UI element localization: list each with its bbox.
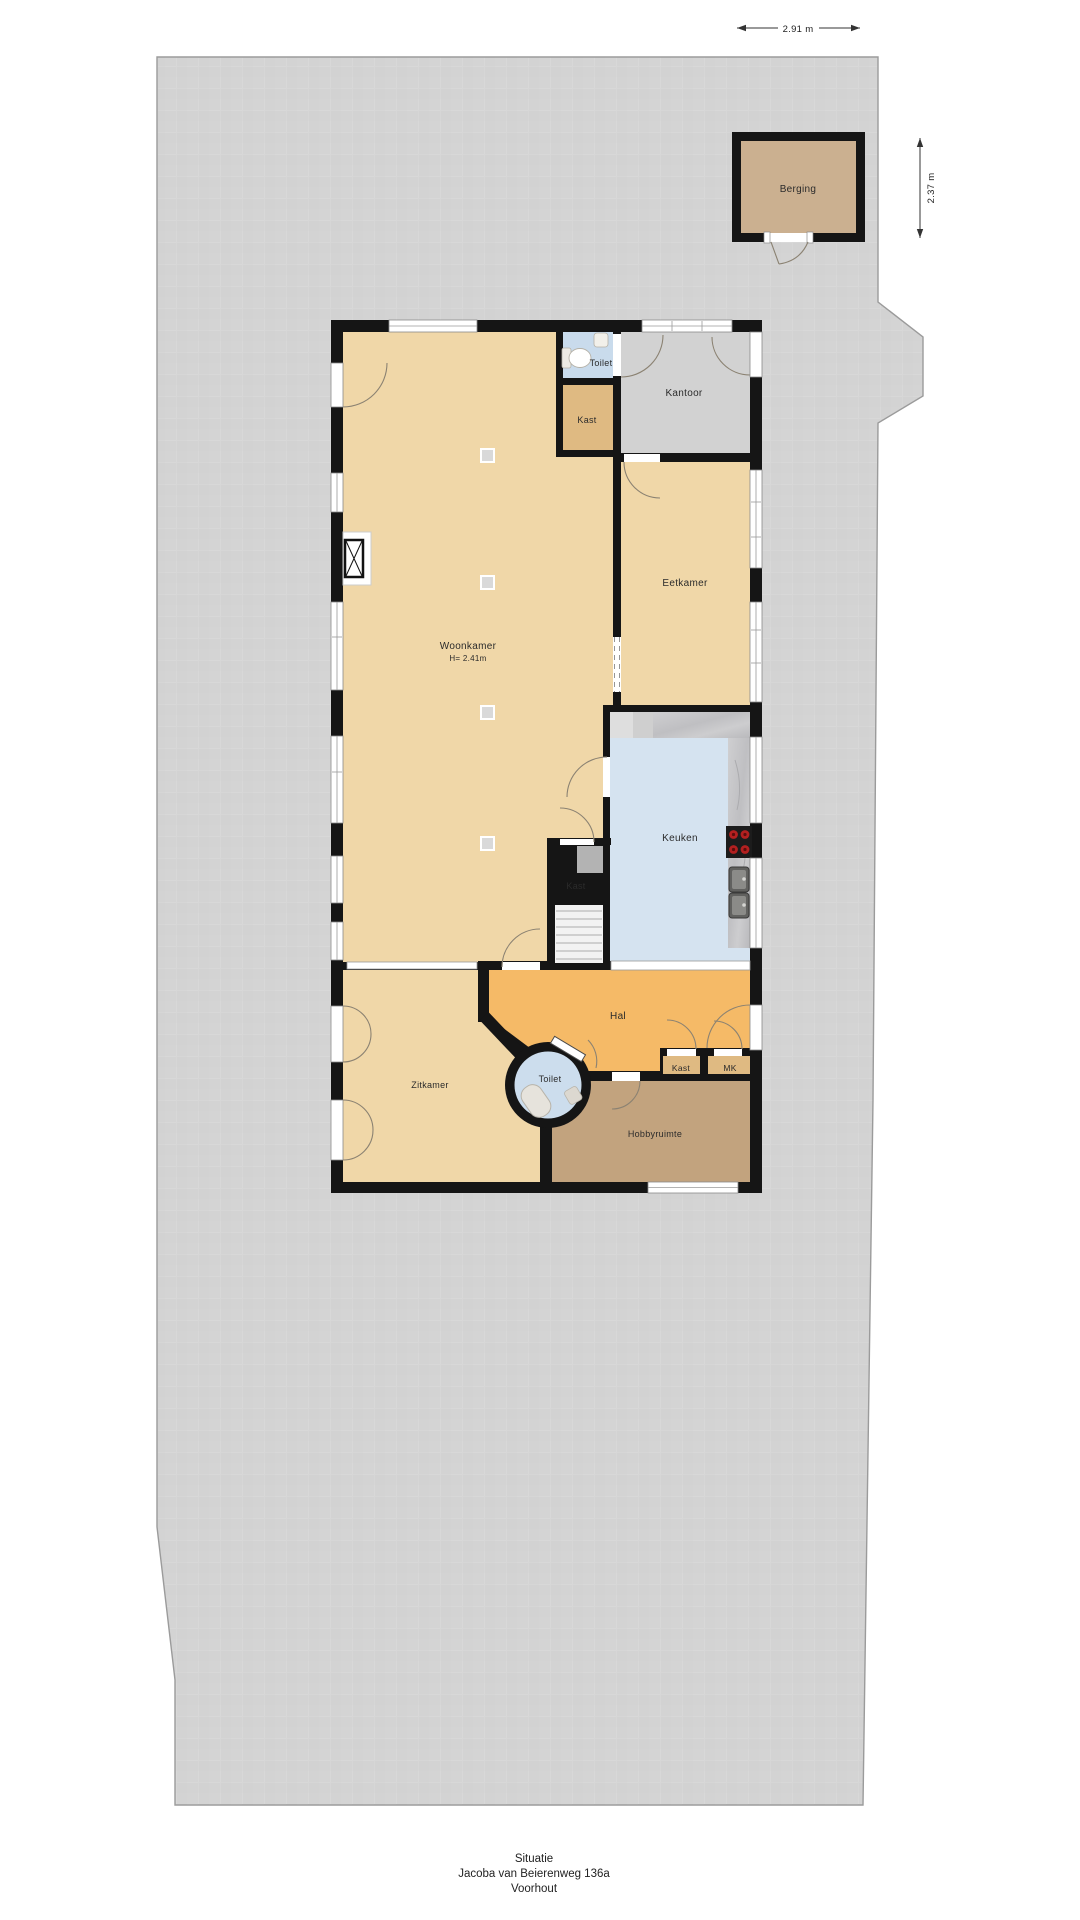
toilet-round-label: Toilet: [539, 1074, 562, 1084]
kast-onder-label: Kast: [672, 1063, 691, 1073]
kast-top-label: Kast: [577, 415, 596, 425]
window: [331, 363, 343, 1160]
woonkamer-label: Woonkamer: [440, 641, 497, 652]
kast-midden-label: Kast: [566, 881, 585, 891]
measurement-width: 2.91 m: [737, 20, 860, 35]
berging-label: Berging: [780, 184, 817, 195]
kantoor-label: Kantoor: [665, 388, 702, 399]
measure-depth-label: 2.37 m: [926, 173, 937, 204]
caption: Situatie Jacoba van Beierenweg 136a Voor…: [0, 1852, 1068, 1897]
house: Toilet Kast Kantoor Eetkamer Woonkamer H…: [331, 320, 762, 1193]
hobbyruimte-label: Hobbyruimte: [628, 1129, 682, 1139]
opening-keuken-hal: [611, 961, 750, 970]
measurement-depth: 2.37 m: [917, 138, 937, 238]
woonkamer-height-label: H= 2.41m: [449, 654, 486, 663]
measure-width-label: 2.91 m: [783, 24, 814, 35]
fireplace: [343, 532, 371, 585]
floorplan-page: Berging 2.91 m 2.37 m: [0, 0, 1080, 1920]
mk-label: MK: [723, 1063, 736, 1073]
zitkamer-label: Zitkamer: [411, 1080, 448, 1090]
toilet-top-label: Toilet: [590, 358, 613, 368]
caption-title: Situatie: [0, 1852, 1068, 1867]
stove: [726, 826, 752, 858]
hal-label: Hal: [610, 1011, 626, 1022]
opening-woonkamer-zitkamer: [347, 962, 477, 969]
kitchen-sink: [729, 867, 749, 918]
window: [648, 1182, 738, 1193]
opening-woonkamer-eetkamer-dashed: [613, 637, 621, 692]
caption-city: Voorhout: [0, 1882, 1068, 1897]
floorplan-drawing: Berging 2.91 m 2.37 m: [0, 0, 1080, 1920]
eetkamer-label: Eetkamer: [662, 578, 708, 589]
toilet-top-sink: [594, 333, 608, 347]
keuken-label: Keuken: [662, 833, 698, 844]
caption-address: Jacoba van Beierenweg 136a: [0, 1867, 1068, 1882]
